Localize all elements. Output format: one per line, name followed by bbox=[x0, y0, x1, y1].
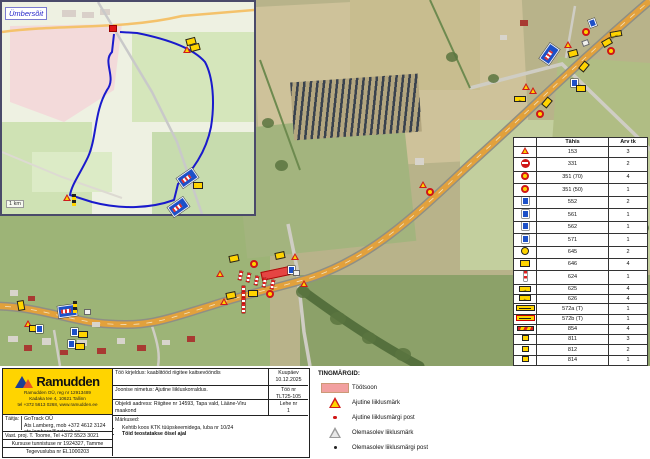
legend-row: 8122 bbox=[514, 345, 648, 356]
symbols-legend-label: Töötsoon bbox=[352, 385, 377, 391]
performer-cell: Täitja: GoTrack OÜAts Lamberg, mob +372 … bbox=[3, 415, 113, 432]
sign-marker-postB bbox=[72, 194, 76, 206]
legend-row: 5522 bbox=[514, 196, 648, 209]
symbols-legend-label: Olemasolev liiklusmärgi post bbox=[352, 445, 428, 451]
symbols-legend: TINGMÄRGID: TöötsoonAjutine liiklusmärkA… bbox=[318, 370, 644, 455]
legend-row: 6464 bbox=[514, 259, 648, 271]
sign-qty: 4 bbox=[609, 259, 648, 271]
arrowL-icon: ← bbox=[519, 295, 531, 301]
brand-name: Ramudden bbox=[36, 374, 99, 390]
performer-lines: GoTrack OÜAts Lamberg, mob +372 4612 312… bbox=[24, 416, 105, 430]
sign-marker-warn bbox=[529, 87, 537, 94]
legend-row: 6241 bbox=[514, 270, 648, 285]
symbols-legend-label: Ajutine liiklusmärgi post bbox=[352, 415, 415, 421]
legend-header-icon bbox=[514, 138, 537, 147]
sign-qty: 1 bbox=[609, 355, 648, 366]
legend-row: 5611 bbox=[514, 209, 648, 222]
sign-code: 561 bbox=[537, 209, 609, 222]
blueboard-icon bbox=[522, 222, 529, 230]
sign-code: 572a (T) bbox=[537, 304, 609, 315]
sign-code: 572b (T) bbox=[537, 314, 609, 325]
sign-qty: 4 bbox=[609, 294, 648, 304]
legend-row: 351 (50)1 bbox=[514, 184, 648, 197]
sign-marker-postB bbox=[73, 301, 77, 313]
legend-row: 572a (T)1 bbox=[514, 304, 648, 315]
sign-code: 811 bbox=[537, 334, 609, 345]
sign-marker-yellowboard bbox=[567, 49, 578, 58]
sign-code: 153 bbox=[537, 146, 609, 158]
ylong-icon bbox=[516, 305, 535, 311]
sign-marker-yellowboard bbox=[193, 182, 203, 189]
sign-qty: 1 bbox=[609, 209, 648, 222]
title-block: Ramudden Ramudden OÜ, reg nr 12913489Kad… bbox=[2, 368, 310, 458]
yellowboard-icon bbox=[520, 260, 530, 267]
work-description: Töö kirjeldus: kaablitööd riigitee kaits… bbox=[113, 369, 269, 386]
ramudden-logo-cell: Ramudden Ramudden OÜ, reg nr 12913489Kad… bbox=[3, 369, 113, 415]
blueboard-icon bbox=[522, 235, 529, 243]
sign-marker-speed bbox=[536, 110, 544, 118]
brand-address-lines: Ramudden OÜ, reg nr 12913489Kadaka tee 4… bbox=[5, 390, 110, 408]
sign-marker-detour bbox=[167, 197, 189, 218]
sign-qty: 2 bbox=[609, 196, 648, 209]
sign-qty: 2 bbox=[609, 246, 648, 259]
sign-code: 625 bbox=[537, 285, 609, 295]
legend-row: 8113 bbox=[514, 334, 648, 345]
sign-marker-yellowboard bbox=[17, 300, 26, 311]
sign-code: 645 bbox=[537, 246, 609, 259]
sign-marker-arrowR: → bbox=[610, 30, 623, 38]
noentry-icon bbox=[521, 159, 530, 168]
symbols-list: TöötsoonAjutine liiklusmärkAjutine liikl… bbox=[318, 380, 644, 455]
sign-qty: 1 bbox=[609, 234, 648, 247]
sign-marker-post bbox=[262, 278, 267, 287]
certificate-line: Kursuse tunnistuse nr 1924327, Tamme bbox=[3, 440, 113, 448]
sign-qty: 4 bbox=[609, 325, 648, 335]
sign-code: 552 bbox=[537, 196, 609, 209]
sign-marker-speed bbox=[582, 28, 590, 36]
bottom-strip: Ramudden Ramudden OÜ, reg nr 12913489Kad… bbox=[0, 366, 650, 459]
sign-qty: 1 bbox=[609, 221, 648, 234]
sign-marker-yellowboard bbox=[541, 96, 553, 108]
sign-marker-speed bbox=[426, 188, 434, 196]
sign-marker-speed bbox=[250, 260, 258, 268]
tempsign-icon bbox=[329, 397, 341, 408]
sign-qty: 1 bbox=[609, 184, 648, 197]
ysmall-icon bbox=[522, 335, 529, 341]
sheet-value: 1 bbox=[271, 408, 306, 415]
drawing-title: Joonise nimetus: Ajutine liikluskorraldu… bbox=[113, 386, 269, 400]
license-line: Tegevusluba nr EL1000203 bbox=[3, 448, 113, 456]
legend-row: 5711 bbox=[514, 234, 648, 247]
sign-code: 624 bbox=[537, 270, 609, 285]
sign-marker-yellowboard bbox=[78, 331, 88, 338]
date-cell: Kuupäev 10.12.2025 bbox=[269, 369, 308, 386]
sign-code: 351 (70) bbox=[537, 171, 609, 184]
sign-marker-yellowboard bbox=[274, 251, 285, 260]
sign-marker-yellowboard bbox=[578, 60, 590, 72]
sign-marker-whiteboard bbox=[581, 39, 590, 47]
arrowR-icon: → bbox=[519, 286, 531, 292]
logo-triangle-red-icon bbox=[23, 379, 33, 388]
symbols-legend-label: Olemasolev liiklusmärk bbox=[352, 430, 413, 436]
symbols-legend-item: Töötsoon bbox=[318, 380, 644, 395]
sign-qty: 2 bbox=[609, 158, 648, 172]
blueboard-icon bbox=[522, 210, 529, 218]
speed-icon bbox=[521, 172, 529, 180]
note-item: Töid teostatakse öisel ajal bbox=[122, 431, 306, 438]
sign-marker-yellowboard bbox=[225, 291, 236, 300]
temppost-icon bbox=[333, 416, 337, 420]
existsign-icon bbox=[329, 427, 341, 438]
symbols-legend-label: Ajutine liiklusmärk bbox=[352, 400, 400, 406]
sign-marker-detour bbox=[539, 43, 560, 65]
legend-row: 8544 bbox=[514, 325, 648, 335]
sign-code: 812 bbox=[537, 345, 609, 356]
sign-marker-warn bbox=[419, 181, 427, 188]
sign-marker-yellowboard bbox=[248, 290, 258, 297]
legend-header-row: Tähis Arv tk bbox=[514, 138, 648, 147]
sign-qty: 3 bbox=[609, 146, 648, 158]
legend-row: 3312 bbox=[514, 158, 648, 172]
symbols-legend-title: TINGMÄRGID: bbox=[318, 370, 644, 377]
sign-qty: 3 bbox=[609, 334, 648, 345]
symbols-legend-item: Olemasolev liiklusmärgi post bbox=[318, 440, 644, 455]
ysmall-icon bbox=[522, 346, 529, 352]
sign-qty: 1 bbox=[609, 304, 648, 315]
ysmall-icon bbox=[522, 356, 529, 362]
sign-marker-whiteboard bbox=[293, 270, 300, 276]
speed-icon bbox=[521, 185, 529, 193]
sign-marker-post bbox=[242, 304, 245, 313]
notes-list: Kehtib koos KTK tüüpskeemidega, luba nr … bbox=[122, 425, 306, 438]
legend-header-code: Tähis bbox=[537, 138, 609, 147]
sign-marker-post bbox=[238, 271, 243, 280]
ylong2-icon bbox=[516, 315, 535, 321]
traffic-plan-page: Ümbersõit 1 km →← Tähis Arv tk 153333123… bbox=[0, 0, 650, 459]
sign-marker-yellowboard bbox=[228, 254, 239, 263]
sign-marker-whiteboard bbox=[84, 309, 91, 315]
brand-address-line: tel +372 5613 0268, www.ramudden.ee bbox=[5, 402, 110, 408]
sign-code: 854 bbox=[537, 325, 609, 335]
legend-header-qty: Arv tk bbox=[609, 138, 648, 147]
sign-marker-blueboard bbox=[588, 18, 597, 28]
sign-qty: 1 bbox=[609, 270, 648, 285]
legend-row: 572b (T)1 bbox=[514, 314, 648, 325]
zone-icon bbox=[321, 383, 349, 393]
legend-row: ←6264 bbox=[514, 294, 648, 304]
sign-code: 331 bbox=[537, 158, 609, 172]
legend-row: 5621 bbox=[514, 221, 648, 234]
sign-marker-speed bbox=[607, 47, 615, 55]
sign-qty: 4 bbox=[609, 171, 648, 184]
blueboard-icon bbox=[522, 197, 529, 205]
notes-title: Märkused: bbox=[115, 417, 306, 424]
date-value: 10.12.2025 bbox=[271, 377, 306, 384]
symbols-legend-item: Ajutine liiklusmärk bbox=[318, 395, 644, 410]
object-address: Objekti aadress: Riigitee nr 14593, Tapa… bbox=[113, 400, 269, 416]
fence-icon bbox=[517, 326, 534, 331]
sign-marker-speed bbox=[266, 290, 274, 298]
sign-marker-warn bbox=[291, 253, 299, 260]
notes-cell: Märkused: Kehtib koos KTK tüüpskeemidega… bbox=[113, 416, 308, 456]
legend-row: 6452 bbox=[514, 246, 648, 259]
sign-marker-warn bbox=[216, 270, 224, 277]
sign-marker-dotred bbox=[109, 25, 117, 32]
sign-marker-warn bbox=[183, 46, 191, 53]
symbols-legend-item: Olemasolev liiklusmärk bbox=[318, 425, 644, 440]
sign-marker-warn bbox=[564, 41, 572, 48]
sign-marker-blueboard bbox=[36, 325, 43, 333]
sign-marker-blueboard bbox=[71, 328, 78, 336]
sign-marker-warn bbox=[300, 280, 308, 287]
delin-icon bbox=[524, 271, 527, 281]
sign-qty: 4 bbox=[609, 285, 648, 295]
sign-code: 646 bbox=[537, 259, 609, 271]
sign-qty: 2 bbox=[609, 345, 648, 356]
sign-marker-warn bbox=[63, 194, 71, 201]
legend-row: 8141 bbox=[514, 355, 648, 366]
existpost-icon bbox=[334, 446, 337, 449]
ycircle-icon bbox=[521, 247, 529, 255]
sign-qty: 1 bbox=[609, 314, 648, 325]
job-number-cell: Töö nr TLT25-105 bbox=[269, 386, 308, 400]
sign-marker-yellowboard bbox=[576, 85, 586, 92]
sign-code: 351 (50) bbox=[537, 184, 609, 197]
sheet-number-cell: Lehe nr 1 bbox=[269, 400, 308, 416]
sign-marker-post bbox=[270, 280, 275, 289]
sign-marker-blueboard bbox=[68, 340, 75, 348]
sign-marker-post bbox=[254, 276, 259, 285]
sign-code: 562 bbox=[537, 221, 609, 234]
legend-row: →6254 bbox=[514, 285, 648, 295]
sign-marker-arrowL: ← bbox=[514, 96, 526, 102]
legend-row: 351 (70)4 bbox=[514, 171, 648, 184]
ramudden-logo: Ramudden bbox=[5, 374, 110, 390]
warn-icon bbox=[521, 147, 529, 154]
sign-code: 626 bbox=[537, 294, 609, 304]
sign-code: 571 bbox=[537, 234, 609, 247]
symbols-legend-item: Ajutine liiklusmärgi post bbox=[318, 410, 644, 425]
sign-marker-post bbox=[246, 273, 251, 282]
legend-row: 1533 bbox=[514, 146, 648, 158]
sign-marker-yellowboard bbox=[75, 343, 85, 350]
responsible-designer: Vast. proj. T. Toome, Tel +372 5523 3021 bbox=[3, 432, 113, 440]
sign-code: 814 bbox=[537, 355, 609, 366]
performer-label: Täitja: bbox=[5, 416, 22, 430]
